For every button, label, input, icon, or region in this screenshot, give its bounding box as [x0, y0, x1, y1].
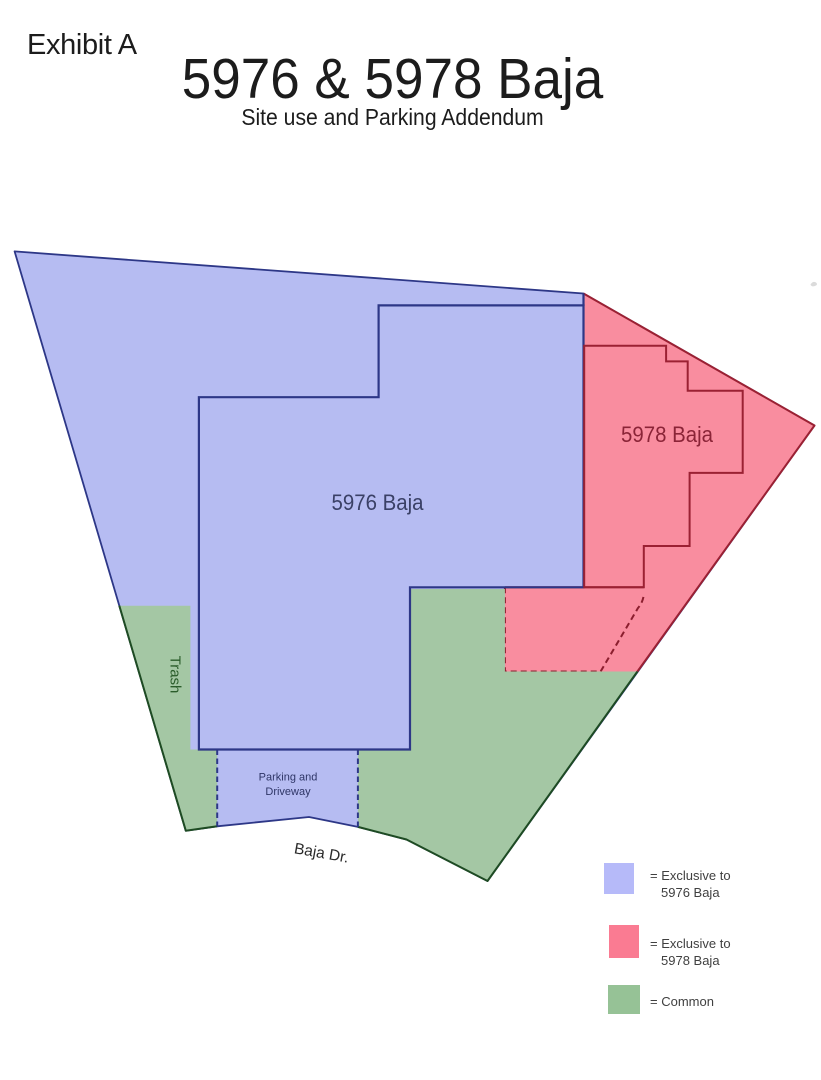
svg-text:5976 Baja: 5976 Baja [332, 490, 425, 515]
svg-text:Driveway: Driveway [265, 786, 311, 798]
svg-text:Parking and: Parking and [259, 772, 318, 784]
svg-text:5978 Baja: 5978 Baja [621, 422, 714, 447]
svg-text:Baja Dr.: Baja Dr. [293, 840, 350, 866]
svg-text:Trash: Trash [167, 656, 184, 694]
